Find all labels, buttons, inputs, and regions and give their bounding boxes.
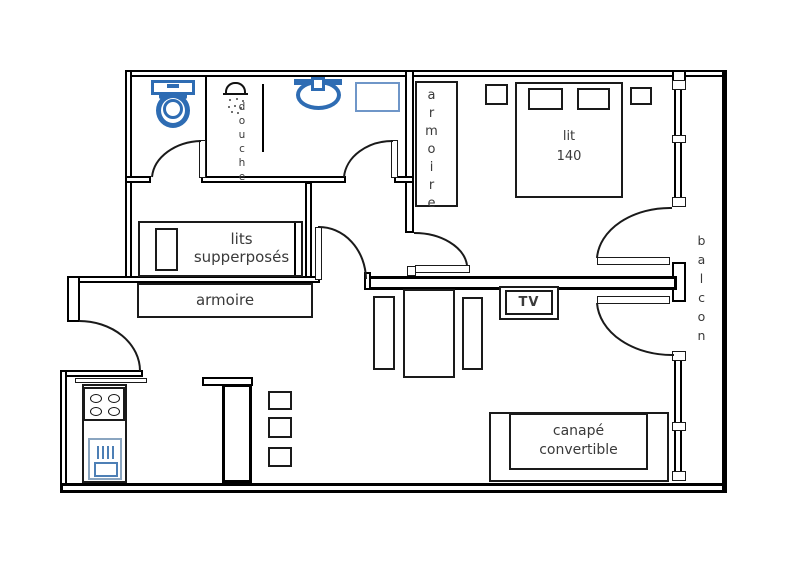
stool bbox=[268, 391, 292, 410]
living-window-rail bbox=[680, 358, 682, 473]
bedroom-balcony-door-leaf bbox=[597, 257, 670, 265]
sofa-label: canapé convertible bbox=[509, 422, 648, 460]
living-window-cap bbox=[672, 471, 686, 481]
kids-room-door-leaf bbox=[315, 227, 322, 280]
kids-bed-label-line1: lits bbox=[180, 230, 303, 248]
living-window-cap bbox=[672, 422, 686, 431]
floor-plan: lits supperposés armoire armoire lit 140… bbox=[0, 0, 800, 566]
bed-pillow bbox=[577, 88, 610, 110]
bedroom-window-cap bbox=[672, 135, 686, 143]
wc-door-arc bbox=[152, 141, 201, 177]
nightstand bbox=[485, 84, 508, 105]
wall-hall-jog bbox=[67, 276, 320, 283]
dining-chair bbox=[373, 296, 395, 370]
sofa-label-line2: convertible bbox=[509, 441, 648, 460]
dining-chair bbox=[462, 297, 483, 370]
kids-bed-label: lits supperposés bbox=[180, 230, 303, 266]
bed-pillow bbox=[528, 88, 563, 110]
bedroom-window-cap bbox=[672, 197, 686, 207]
shower-label: douche bbox=[236, 101, 248, 171]
wall-kitchen-partition bbox=[222, 384, 252, 483]
wall-kids-room-right bbox=[305, 182, 312, 278]
wall-balcony-outer bbox=[722, 70, 727, 493]
dining-table bbox=[403, 289, 455, 378]
wall-divider-end-cap bbox=[364, 272, 371, 290]
sofa-label-line1: canapé bbox=[509, 422, 648, 441]
wall-kitchen-stub bbox=[60, 370, 143, 377]
bedroom-wardrobe-label: armoire bbox=[424, 88, 439, 203]
stove-burner bbox=[90, 394, 102, 403]
wall-left-lower bbox=[60, 370, 67, 488]
kids-room-door-arc bbox=[318, 227, 366, 279]
bed-label: lit 140 bbox=[515, 127, 623, 167]
bedroom-door-arc bbox=[414, 233, 467, 265]
bedroom-balcony-door-arc bbox=[597, 208, 672, 258]
kids-bed-label-line2: supperposés bbox=[180, 248, 303, 266]
bunk-bed-pillow bbox=[155, 228, 178, 271]
stove-burner bbox=[108, 407, 120, 416]
bedroom-window-rail bbox=[674, 88, 676, 198]
wall-left-mid bbox=[67, 276, 80, 322]
bedroom-window-rail bbox=[680, 88, 682, 198]
entry-door-leaf bbox=[75, 378, 147, 383]
bed-label-line1: lit bbox=[515, 127, 623, 147]
stove-burner bbox=[90, 407, 102, 416]
tv-label: TV bbox=[505, 295, 553, 311]
bedroom-window-cap bbox=[672, 80, 686, 90]
living-window-rail bbox=[674, 358, 676, 473]
wc-door-leaf bbox=[199, 140, 206, 178]
stool bbox=[268, 447, 292, 467]
bathroom-door-leaf bbox=[391, 140, 398, 178]
bathroom-door-arc bbox=[344, 141, 393, 177]
wall-bathroom-bottom-2 bbox=[201, 176, 346, 183]
entry-door-arc bbox=[79, 321, 140, 371]
bathroom-sink-icon bbox=[292, 75, 346, 115]
washing-machine-icon bbox=[355, 82, 400, 112]
wall-top bbox=[125, 70, 727, 77]
bedroom-door-hinge bbox=[407, 266, 416, 276]
wall-bathroom-bottom-1 bbox=[125, 176, 151, 183]
bedroom-door-leaf bbox=[415, 265, 470, 273]
toilet-icon bbox=[145, 76, 205, 136]
stool bbox=[268, 417, 292, 438]
living-balcony-door-leaf bbox=[597, 296, 670, 304]
wall-bottom bbox=[60, 483, 727, 493]
hall-wardrobe-label: armoire bbox=[137, 291, 313, 309]
living-balcony-door-arc bbox=[597, 303, 674, 355]
bed-label-line2: 140 bbox=[515, 147, 623, 167]
nightstand bbox=[630, 87, 652, 105]
stove-burner bbox=[108, 394, 120, 403]
shower-screen bbox=[262, 84, 264, 152]
living-window-cap bbox=[672, 351, 686, 361]
stove-icon bbox=[83, 387, 125, 421]
wall-bathroom-right bbox=[405, 70, 414, 233]
kitchen-sink-icon bbox=[88, 438, 122, 480]
balcony-label: balcon bbox=[694, 233, 709, 335]
